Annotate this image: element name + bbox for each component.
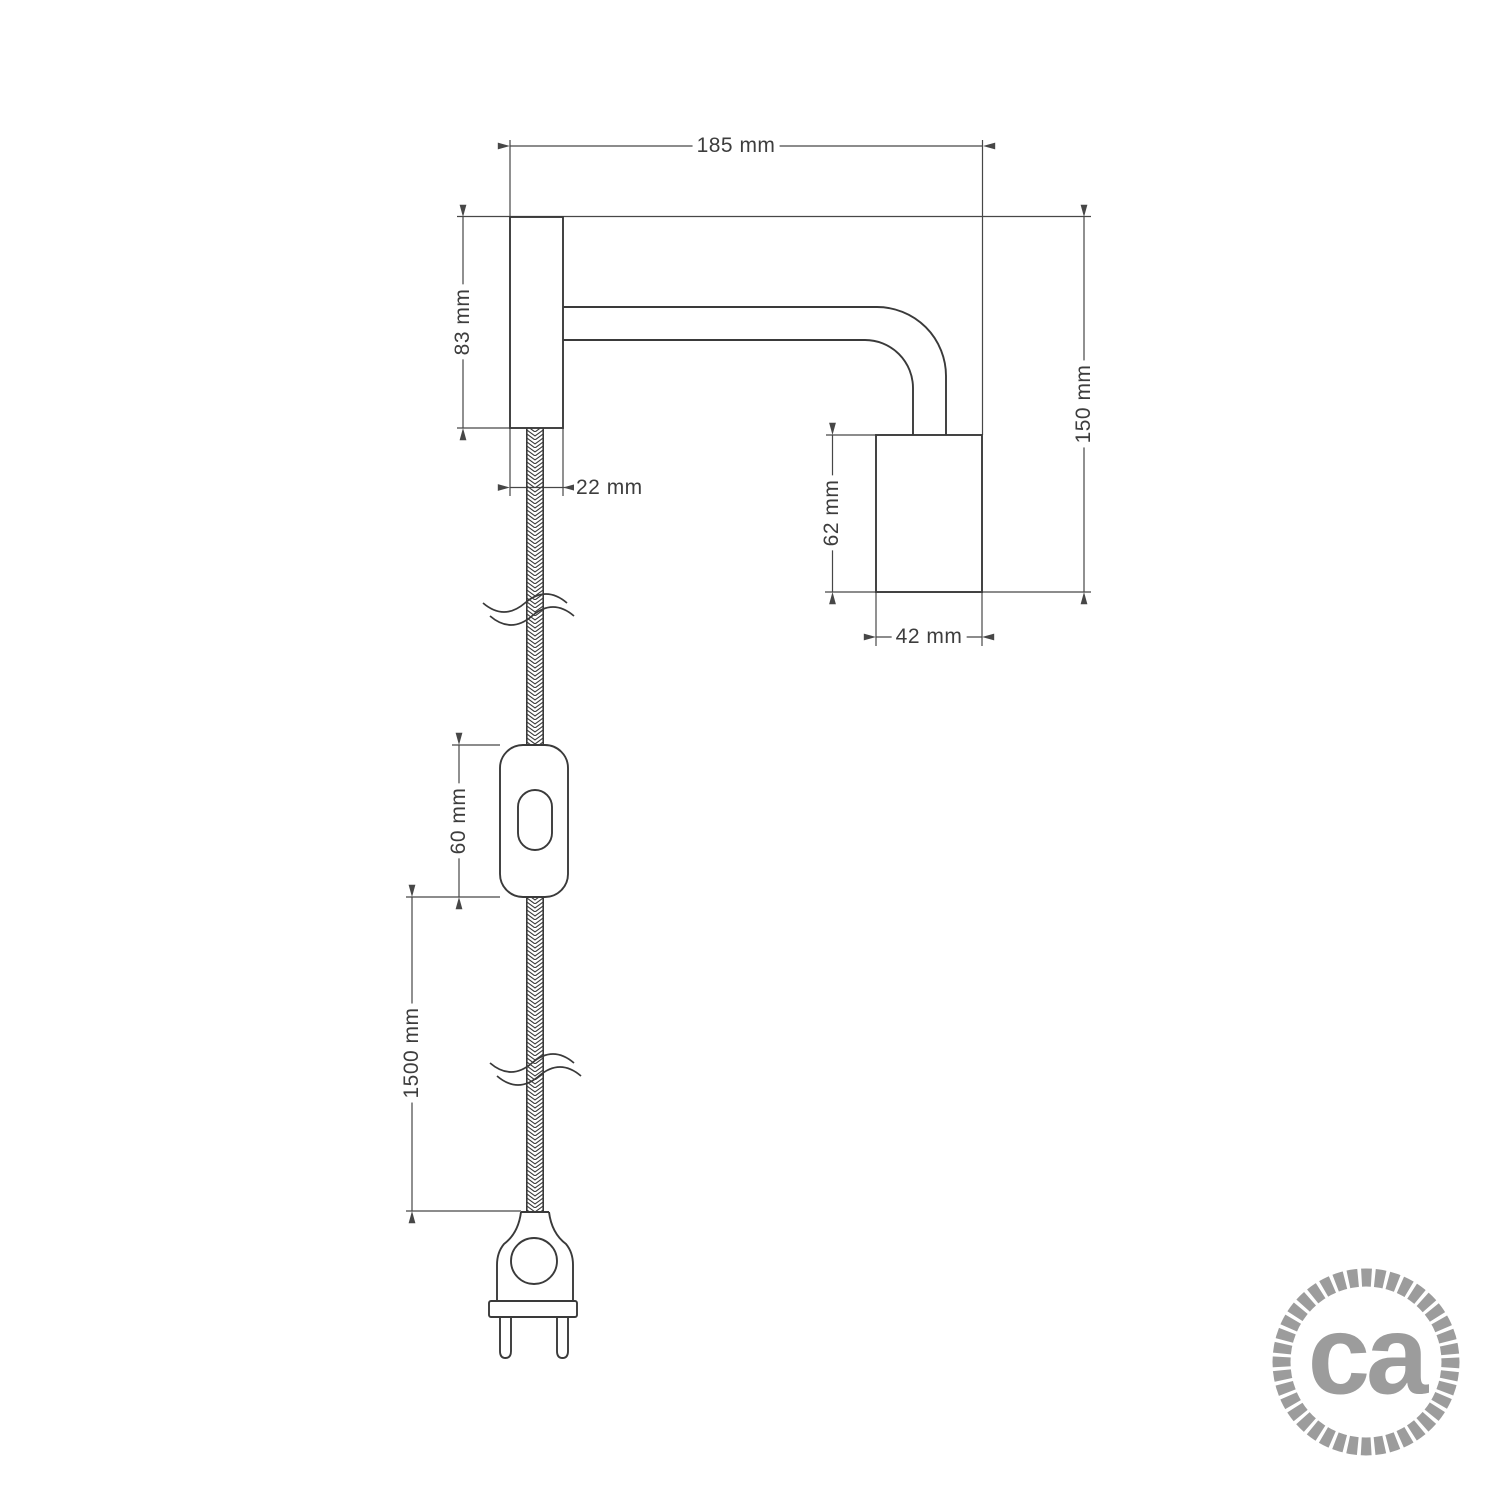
switch-rocker bbox=[518, 790, 552, 850]
dim-label-cable-length: 1500 mm bbox=[400, 1003, 424, 1102]
dim-label-total-height: 150 mm bbox=[1072, 361, 1096, 448]
plug-body-left bbox=[497, 1212, 521, 1301]
lamp-dimension-diagram bbox=[0, 0, 1500, 1500]
dim-label-bracket-height: 83 mm bbox=[451, 285, 475, 360]
plug-body-right bbox=[549, 1212, 573, 1301]
dim-label-socket-width: 42 mm bbox=[892, 625, 967, 649]
dimension-lines bbox=[406, 140, 1091, 1211]
arm-tube-inner bbox=[563, 340, 913, 435]
inline-switch bbox=[500, 745, 568, 897]
plug-pin-right bbox=[557, 1317, 568, 1358]
plug-screw-circle bbox=[511, 1238, 557, 1284]
dim-label-socket-height: 62 mm bbox=[820, 476, 844, 551]
plug-pin-left bbox=[500, 1317, 511, 1358]
brand-logo-text: ca bbox=[1308, 1290, 1425, 1419]
technical-drawing-canvas: 185 mm 83 mm 22 mm 150 mm 62 mm 42 mm 60… bbox=[0, 0, 1500, 1500]
euro-plug bbox=[489, 1212, 577, 1358]
fixture-outline bbox=[510, 217, 982, 592]
plug-skirt bbox=[489, 1301, 577, 1317]
wall-bracket bbox=[510, 217, 563, 428]
lamp-holder bbox=[876, 435, 982, 592]
arm-tube-outer bbox=[563, 307, 946, 435]
cable-upper-braid bbox=[526, 428, 544, 745]
dim-label-bracket-width: 22 mm bbox=[574, 476, 645, 500]
dim-label-switch-length: 60 mm bbox=[447, 784, 471, 859]
dim-label-total-width: 185 mm bbox=[693, 134, 780, 158]
cable-lower-braid bbox=[526, 897, 544, 1212]
